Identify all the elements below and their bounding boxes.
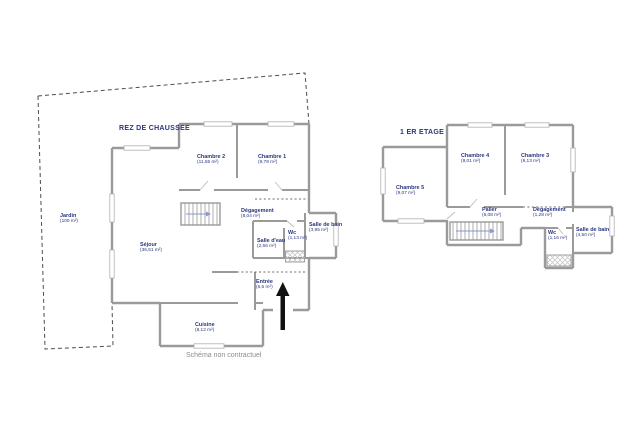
first-floor-windows (381, 123, 614, 236)
room-name: Cuisine (195, 321, 215, 328)
room-name: Chambre 4 (461, 152, 489, 159)
room-label-chambre5: Chambre 5 (9,07 m²) (396, 184, 424, 197)
floorplan-page: { "caption": "Schéma non contractuel", "… (0, 0, 640, 427)
room-name: Jardin (60, 212, 78, 219)
room-area: (9,13 m²) (521, 159, 549, 165)
hatch-area-first (547, 255, 571, 266)
room-name: Entrée (256, 278, 273, 285)
room-area: (3,95 m²) (309, 228, 342, 234)
room-name: Wc (288, 229, 307, 236)
room-label-sejour: Séjour (36,51 m²) (140, 241, 162, 254)
disclaimer-caption: Schéma non contractuel (186, 352, 262, 359)
room-label-cuisine: Cuisine (8,12 m²) (195, 321, 215, 334)
room-label-chambre2: Chambre 2 (11,55 m²) (197, 153, 225, 166)
stairs-ground-floor (181, 203, 220, 225)
first-floor-title: 1 ER ETAGE (400, 129, 444, 136)
room-name: Salle de bain (576, 226, 609, 233)
room-area: (6,5 m²) (256, 285, 273, 291)
room-label-jardin: Jardin (100 m²) (60, 212, 78, 225)
room-name: Salle d'eau (257, 237, 285, 244)
room-name: Salle de bain (309, 221, 342, 228)
room-area: (4,50 m²) (576, 233, 609, 239)
hatch-area-ground (286, 251, 305, 262)
room-name: Chambre 2 (197, 153, 225, 160)
room-name: Wc (548, 229, 567, 236)
room-label-degagement-etage: Dégagement (1,28 m²) (533, 206, 566, 219)
room-label-palier: Palier (6,08 m²) (482, 206, 501, 219)
room-label-chambre3: Chambre 3 (9,13 m²) (521, 152, 549, 165)
stairs-first-floor (450, 222, 503, 240)
room-label-chambre4: Chambre 4 (9,01 m²) (461, 152, 489, 165)
room-area: (9,07 m²) (396, 191, 424, 197)
room-name: Séjour (140, 241, 162, 248)
room-area: (1,28 m²) (533, 213, 566, 219)
room-label-wc-etage: Wc (1,16 m²) (548, 229, 567, 242)
room-area: (11,55 m²) (197, 160, 225, 166)
ground-floor-title: REZ DE CHAUSSEE (119, 125, 190, 132)
room-name: Dégagement (533, 206, 566, 213)
room-name: Palier (482, 206, 501, 213)
room-label-salle-bain-rdc: Salle de bain (3,95 m²) (309, 221, 342, 234)
room-area: (100 m²) (60, 219, 78, 225)
room-name: Dégagement (241, 207, 274, 214)
room-label-chambre1: Chambre 1 (9,78 m²) (258, 153, 286, 166)
room-label-salle-eau: Salle d'eau (2,56 m²) (257, 237, 285, 250)
room-name: Chambre 1 (258, 153, 286, 160)
entrance-arrow (276, 282, 290, 330)
room-area: (2,56 m²) (257, 244, 285, 250)
room-area: (8,12 m²) (195, 328, 215, 334)
room-label-wc-rdc: Wc (1,13 m²) (288, 229, 307, 242)
room-label-degagement-rdc: Dégagement (8,04 m²) (241, 207, 274, 220)
room-name: Chambre 3 (521, 152, 549, 159)
room-area: (6,08 m²) (482, 213, 501, 219)
room-area: (1,16 m²) (548, 236, 567, 242)
room-area: (1,13 m²) (288, 236, 307, 242)
room-label-entree: Entrée (6,5 m²) (256, 278, 273, 291)
room-label-salle-bain-etage: Salle de bain (4,50 m²) (576, 226, 609, 239)
room-area: (36,51 m²) (140, 248, 162, 254)
room-name: Chambre 5 (396, 184, 424, 191)
room-area: (9,78 m²) (258, 160, 286, 166)
room-area: (8,04 m²) (241, 214, 274, 220)
room-area: (9,01 m²) (461, 159, 489, 165)
